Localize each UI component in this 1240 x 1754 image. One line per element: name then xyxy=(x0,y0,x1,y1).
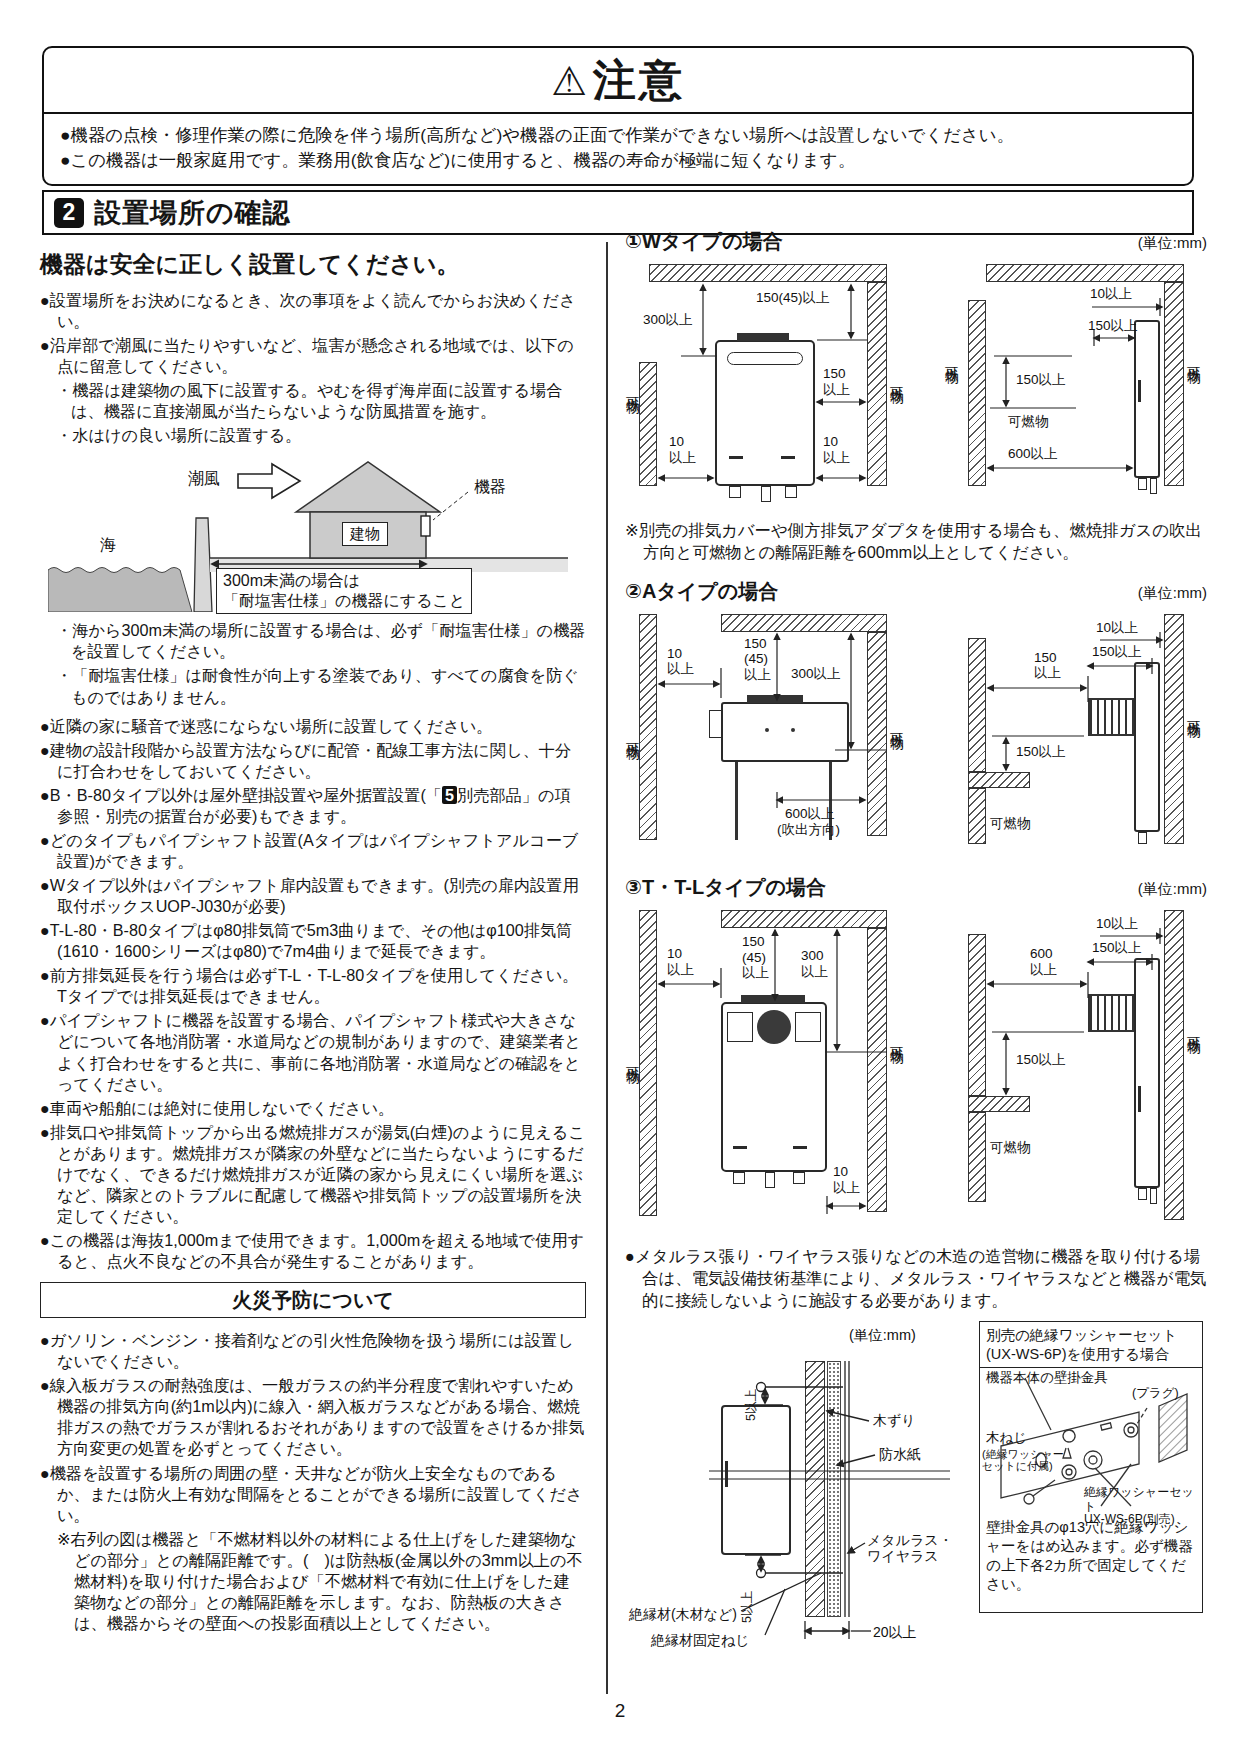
left-column: 機器は安全に正しく設置してください。 ●設置場所をお決めになるとき、次の事項をよ… xyxy=(40,250,586,1637)
pipe-stub xyxy=(1138,832,1147,844)
vent-panel xyxy=(727,1012,753,1042)
panel-slot xyxy=(729,456,743,459)
intro-heading: 機器は安全に正しく設置してください。 xyxy=(40,250,586,280)
bullet-item: ●前方排気延長を行う場合は必ずT-L・T-L-80タイプを使用してください。Tタ… xyxy=(40,965,586,1007)
lath-unit-label: (単位:mm) xyxy=(849,1327,916,1343)
left-wall-lower xyxy=(968,1112,986,1202)
dim-label: 150以上 xyxy=(1092,940,1142,955)
top-vent xyxy=(741,995,805,1003)
bullet-item: ●機器を設置する場所の周囲の壁・天井などが防火上安全なものであるか、または防火上… xyxy=(40,1463,586,1526)
combustible-label: 可燃物 xyxy=(625,386,640,391)
bullet-item: ●どのタイプもパイプシャフト設置(Aタイプはパイプシャフトアルコーブ設置)ができ… xyxy=(40,830,586,872)
dim-label: 20以上 xyxy=(873,1625,917,1641)
section-number: 2 xyxy=(54,198,84,228)
washer-set-box: 別売の絶縁ワッシャーセット (UX-WS-6P)を使用する場合 xyxy=(979,1321,1203,1613)
washer-box-text: 壁掛金具のφ13穴に絶縁ワッシャーをはめ込みます。必ず機器の上下各2カ所で固定し… xyxy=(980,1516,1202,1594)
right-column: ①Wタイプの場合 (単位:mm) xyxy=(625,228,1207,1653)
dim-label: 150以上 xyxy=(1016,1052,1066,1067)
combustible-label: 可燃物 xyxy=(889,1036,904,1041)
side-detail xyxy=(725,1461,728,1487)
umi-label: 海 xyxy=(100,536,116,554)
bullet-item: ●B・B-80タイプ以外は屋外壁掛設置や屋外据置設置(「5別売部品」の項参照・別… xyxy=(40,785,586,827)
exhaust-adapter xyxy=(1088,994,1134,1032)
dim-label: 300以上 xyxy=(643,312,693,327)
metal-lath-label: メタルラス・ ワイヤラス xyxy=(867,1533,953,1565)
bullet-item: ●T-L-80・B-80タイプはφ80排気筒で5m3曲りまで、その他はφ100排… xyxy=(40,920,586,962)
side-tab xyxy=(709,710,722,738)
washer-set-label: 絶縁ワッシャーセット UX-WS-6P(別売) xyxy=(1084,1486,1202,1527)
sub-bullet-item: ・「耐塩害仕様」は耐食性が向上する塗装であり、すべての腐食を防ぐものではありませ… xyxy=(40,665,586,707)
bullet-item: ●沿岸部で潮風に当たりやすいなど、塩害が懸念される地域では、以下の点に留意してく… xyxy=(40,335,586,377)
pipe-leg xyxy=(735,762,738,840)
right-wall xyxy=(867,928,887,1212)
t-side-diagram: 600 以上 10以上 150以上 150以上 可燃物 可燃物 xyxy=(942,906,1202,1236)
bullet-item: ●設置場所をお決めになるとき、次の事項をよく読んでからお決めください。 xyxy=(40,290,586,332)
pipe-stub xyxy=(785,486,797,498)
combustible-label: 可燃物 xyxy=(625,1056,640,1061)
wall-step xyxy=(968,1096,1030,1112)
pipe-stub xyxy=(733,1172,745,1184)
dim-label: 150以上 xyxy=(1092,644,1142,659)
pipe-stub xyxy=(1138,1188,1147,1200)
dim-label: 5以上 xyxy=(739,1592,756,1624)
water-heater-side xyxy=(1134,662,1160,832)
a-side-diagram: 150 以上 10以上 150以上 150以上 可燃物 可燃物 xyxy=(942,610,1202,860)
dim-label: 300 以上 xyxy=(801,948,828,979)
sub-bullet-item: ・機器は建築物の風下に設置する。やむを得ず海岸面に設置する場合は、機器に直接潮風… xyxy=(40,380,586,422)
water-heater-side xyxy=(721,1405,791,1555)
right-wall xyxy=(1164,614,1184,844)
combustible-label: 可燃物 xyxy=(889,722,904,727)
a-type-title: ②Aタイプの場合 xyxy=(625,578,778,604)
dim-label: 300以上 xyxy=(791,666,841,681)
shiokaze-label: 潮風 xyxy=(188,470,220,488)
sub-bullet-item: ・水はけの良い場所に設置する。 xyxy=(40,425,586,446)
bullet-item: ●車両や船舶には絶対に使用しないでください。 xyxy=(40,1098,586,1119)
water-heater-front xyxy=(721,702,849,762)
left-wall-upper xyxy=(968,638,986,772)
left-wall xyxy=(639,362,657,486)
page-number: 2 xyxy=(0,1700,1240,1722)
bousui-layer xyxy=(827,1361,841,1617)
w-front-diagram: 300以上 150(45)以上 150 以上 10 以上 10 以上 可燃物 可… xyxy=(625,260,910,510)
tatemono-label: 建物 xyxy=(342,522,388,546)
dim-label: 600以上 xyxy=(785,806,835,821)
left-wall xyxy=(968,300,986,486)
caution-title-text: 注意 xyxy=(593,52,685,110)
panel-slot xyxy=(733,1146,747,1149)
dim-label: 600 以上 xyxy=(1030,946,1057,977)
kiki-label: 機器 xyxy=(474,478,506,496)
pipe-stub xyxy=(761,486,771,502)
combustible-label: 可燃物 xyxy=(625,732,640,737)
bullet-item: ●線入板ガラスの耐熱強度は、一般ガラスの約半分程度で割れやすいため機器の排気方向… xyxy=(40,1375,586,1459)
combustible-label: 可燃物 xyxy=(1008,414,1049,429)
ceiling-wall xyxy=(721,614,887,632)
wall-step xyxy=(968,772,1030,788)
pipe-stub xyxy=(1150,1188,1157,1204)
t-front-diagram: 10 以上 150 (45) 以上 300 以上 10 以上 可燃物 可燃物 xyxy=(625,906,910,1236)
right-wall xyxy=(1164,282,1184,486)
pipe-stub xyxy=(765,1172,775,1188)
ceiling-wall xyxy=(721,910,887,928)
panel-slot xyxy=(793,1146,807,1149)
t-type-diagrams: 10 以上 150 (45) 以上 300 以上 10 以上 可燃物 可燃物 xyxy=(625,906,1207,1236)
left-wall xyxy=(639,910,657,1216)
pipe-stub xyxy=(729,486,741,498)
dim-label: 10 以上 xyxy=(823,434,850,465)
a-type-unit: (単位:mm) xyxy=(1138,583,1207,603)
sub-bullet-item: ・海から300m未満の場所に設置する場合は、必ず「耐塩害仕様」の機器を設置してく… xyxy=(40,620,586,662)
dim-label: 150(45)以上 xyxy=(755,290,831,305)
caution-title: ⚠ 注意 xyxy=(44,48,1192,114)
dim-label: 10 以上 xyxy=(667,646,694,677)
section5-ref-badge: 5 xyxy=(442,786,457,804)
t-type-title: ③T・T-Lタイプの場合 xyxy=(625,874,826,900)
caution-body: ●機器の点検・修理作業の際に危険を伴う場所(高所など)や機器の正面で作業ができな… xyxy=(44,114,1192,184)
top-vent xyxy=(737,333,789,341)
bullet-item: ●Wタイプ以外はパイプシャフト扉内設置もできます。(別売の扉内設置用取付ボックス… xyxy=(40,875,586,917)
manual-page: ⚠ 注意 ●機器の点検・修理作業の際に危険を伴う場所(高所など)や機器の正面で作… xyxy=(0,0,1240,1754)
kizuri-label: 木ずり xyxy=(873,1413,916,1429)
bullet-item: ●パイプシャフトに機器を設置する場合、パイプシャフト様式や大きさなどについて各地… xyxy=(40,1010,586,1094)
w-type-note: ※別売の排気カバーや側方排気アダプタを使用する場合も、燃焼排ガスの吹出方向と可燃… xyxy=(625,520,1207,563)
pipe-stub xyxy=(1138,478,1147,490)
right-wall xyxy=(1164,910,1184,1220)
top-vent xyxy=(747,695,803,703)
left-wall-lower xyxy=(968,788,986,844)
left-wall xyxy=(639,614,657,840)
bullet-item: ●排気口や排気筒トップから出る燃焼排ガスが湯気(白煙)のように見えることがありま… xyxy=(40,1122,586,1227)
dim-label: 10 以上 xyxy=(833,1164,860,1195)
combustible-label: 可燃物 xyxy=(1186,1026,1201,1031)
caution-bullet: ●機器の点検・修理作業の際に危険を伴う場所(高所など)や機器の正面で作業ができな… xyxy=(60,123,1176,148)
w-type-title: ①Wタイプの場合 xyxy=(625,228,783,254)
dim-label: 150以上 xyxy=(1016,744,1066,759)
dim-label: 150 (45) 以上 xyxy=(743,636,772,682)
dim-label: 10以上 xyxy=(1090,286,1132,301)
exhaust-adapter xyxy=(1088,698,1134,736)
side-detail xyxy=(1138,380,1141,402)
t-type-unit: (単位:mm) xyxy=(1138,879,1207,899)
pipe-stub xyxy=(1150,478,1157,494)
warning-triangle-icon: ⚠ xyxy=(551,58,587,104)
dim-label: 150以上 xyxy=(1016,372,1066,387)
combustible-label: 可燃物 xyxy=(990,1140,1031,1155)
right-wall xyxy=(867,282,887,486)
section-title: 設置場所の確認 xyxy=(94,195,291,231)
note-item: ※右列の図は機器と「不燃材料以外の材料による仕上げをした建築物などの部分」との離… xyxy=(40,1529,586,1634)
dim-label: 10以上 xyxy=(1096,916,1138,931)
dim-label: 5以上 xyxy=(743,1390,760,1422)
sea-diagram: 潮風 建物 機器 海 300m未満の場合は 「耐塩害仕様」の機器にすること xyxy=(48,450,568,612)
panel-slot xyxy=(781,456,795,459)
w-side-diagram: 10以上 150以上 150以上 可燃物 600以上 可燃物 可燃物 xyxy=(942,260,1202,510)
a-front-diagram: 10 以上 150 (45) 以上 300以上 600以上 (吹出方向) 可燃物… xyxy=(625,610,910,860)
water-heater-side xyxy=(1134,958,1160,1188)
dim-label: 150 以上 xyxy=(823,366,850,397)
a-type-diagrams: 10 以上 150 (45) 以上 300以上 600以上 (吹出方向) 可燃物… xyxy=(625,610,1207,860)
insulation-screw-label: 絶縁材固定ねじ xyxy=(651,1633,750,1649)
washer-drawing: 機器本体の壁掛金具 (プラグ) 木ねじ (絶縁ワッシャー セットに付属) 絶縁ワ… xyxy=(980,1368,1202,1516)
caution-bullet: ●この機器は一般家庭用です。業務用(飲食店など)に使用すると、機器の寿命が極端に… xyxy=(60,148,1176,173)
combustible-label: 可燃物 xyxy=(944,356,959,361)
sea-dim-label: 300m未満の場合は 「耐塩害仕様」の機器にすること xyxy=(216,568,472,614)
bullet-item: ●建物の設計段階から設置方法ならびに配管・配線工事方法に関し、十分に打合わせをし… xyxy=(40,740,586,782)
side-detail xyxy=(1138,1086,1141,1112)
dim-label: 150以上 xyxy=(1088,318,1138,333)
combustible-label: 可燃物 xyxy=(990,816,1031,831)
bullet-text: ●B・B-80タイプ以外は屋外壁掛設置や屋外据置設置(「 xyxy=(40,786,442,804)
insulation-label: 絶縁材(木材など) xyxy=(629,1607,737,1623)
kizuri-layer xyxy=(805,1361,825,1617)
bracket-label: 機器本体の壁掛金具 xyxy=(986,1370,1108,1386)
dim-label: 600以上 xyxy=(1008,446,1058,461)
combustible-label: 可燃物 xyxy=(1186,710,1201,715)
dim-label: 10以上 xyxy=(1096,620,1138,635)
right-wall xyxy=(867,632,887,836)
w-type-unit: (単位:mm) xyxy=(1138,233,1207,253)
bullet-item: ●ガソリン・ベンジン・接着剤などの引火性危険物を扱う場所には設置しないでください… xyxy=(40,1330,586,1372)
dim-label: 150 (45) 以上 xyxy=(741,934,770,980)
dim-label: 150 以上 xyxy=(1034,650,1061,681)
washer-box-title: 別売の絶縁ワッシャーセット (UX-WS-6P)を使用する場合 xyxy=(980,1322,1202,1367)
bottom-diagrams: (単位:mm) 5以上 5以上 木ずり 防水紙 メタルラス・ ワイヤラス 絶縁材… xyxy=(625,1321,1207,1653)
ceiling-wall xyxy=(649,264,887,282)
bullet-item: ●近隣の家に騒音で迷惑にならない場所に設置してください。 xyxy=(40,716,586,737)
dim-label: (吹出方向) xyxy=(777,822,840,837)
wood-screw-label: 木ねじ xyxy=(986,1430,1027,1446)
w-type-diagrams: 300以上 150(45)以上 150 以上 10 以上 10 以上 可燃物 可… xyxy=(625,260,1207,510)
lath-wall-diagram: (単位:mm) 5以上 5以上 木ずり 防水紙 メタルラス・ ワイヤラス 絶縁材… xyxy=(625,1321,955,1653)
left-wall-upper xyxy=(968,934,986,1096)
combustible-label: 可燃物 xyxy=(1186,356,1201,361)
pipe-stub xyxy=(793,1172,805,1184)
metal-lath-bullet: ●メタルラス張り・ワイヤラス張りなどの木造の造営物に機器を取り付ける場合は、電気… xyxy=(625,1246,1207,1311)
bousui-label: 防水紙 xyxy=(879,1447,921,1463)
combustible-label: 可燃物 xyxy=(889,376,904,381)
column-divider xyxy=(606,242,608,1694)
dim-label: 10 以上 xyxy=(667,946,694,977)
wood-screw-sub-label: (絶縁ワッシャー セットに付属) xyxy=(982,1448,1064,1473)
fire-prevention-title: 火災予防について xyxy=(40,1282,586,1318)
vent-panel xyxy=(795,1012,821,1042)
exhaust-louver xyxy=(727,352,803,365)
dim-label: 10 以上 xyxy=(669,434,696,465)
ceiling-wall xyxy=(986,264,1184,282)
bullet-item: ●この機器は海抜1,000mまで使用できます。1,000mを超える地域で使用する… xyxy=(40,1230,586,1272)
caution-panel: ⚠ 注意 ●機器の点検・修理作業の際に危険を伴う場所(高所など)や機器の正面で作… xyxy=(42,46,1194,186)
plug-label: (プラグ) xyxy=(1132,1386,1179,1400)
